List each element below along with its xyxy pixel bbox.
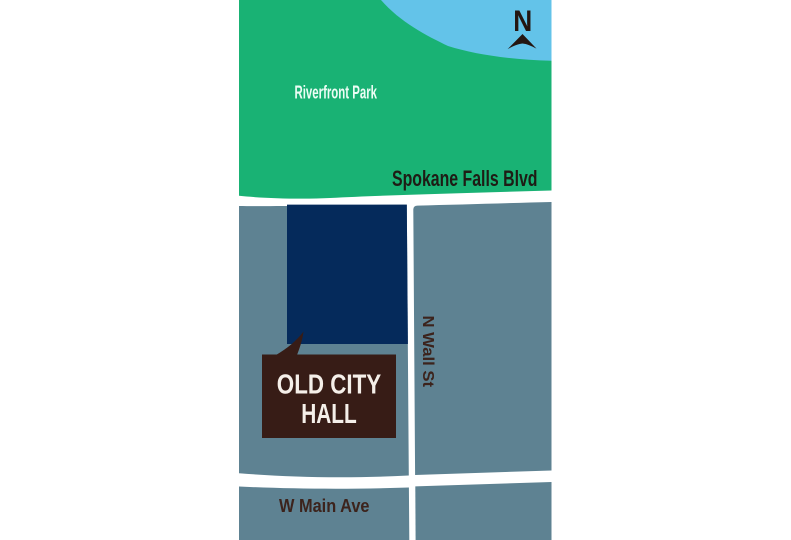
svg-text:N Wall St: N Wall St bbox=[419, 316, 436, 388]
svg-text:OLD CITY: OLD CITY bbox=[277, 368, 382, 399]
svg-text:W Main Ave: W Main Ave bbox=[279, 496, 370, 516]
svg-text:Riverfront Park: Riverfront Park bbox=[295, 83, 378, 103]
svg-text:Spokane Falls Blvd: Spokane Falls Blvd bbox=[392, 166, 538, 191]
svg-text:HALL: HALL bbox=[301, 398, 357, 429]
svg-text:N: N bbox=[513, 5, 532, 38]
